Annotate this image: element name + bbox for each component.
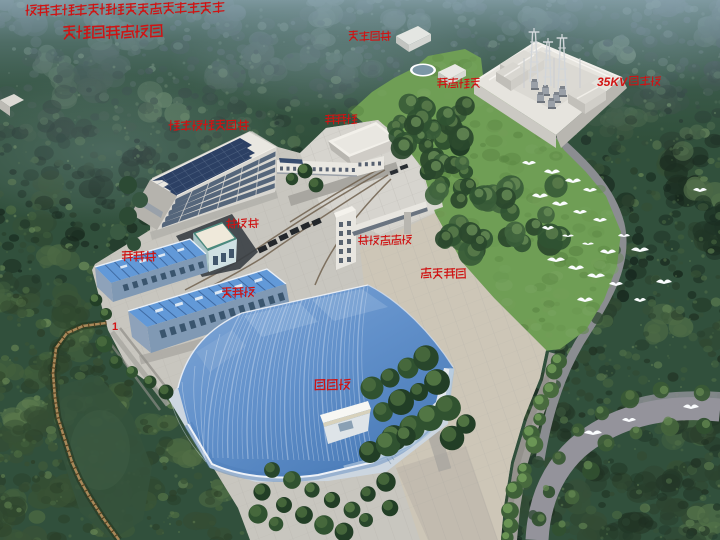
svg-text:1: 1: [112, 321, 118, 333]
svg-text:35KV: 35KV: [597, 75, 628, 89]
